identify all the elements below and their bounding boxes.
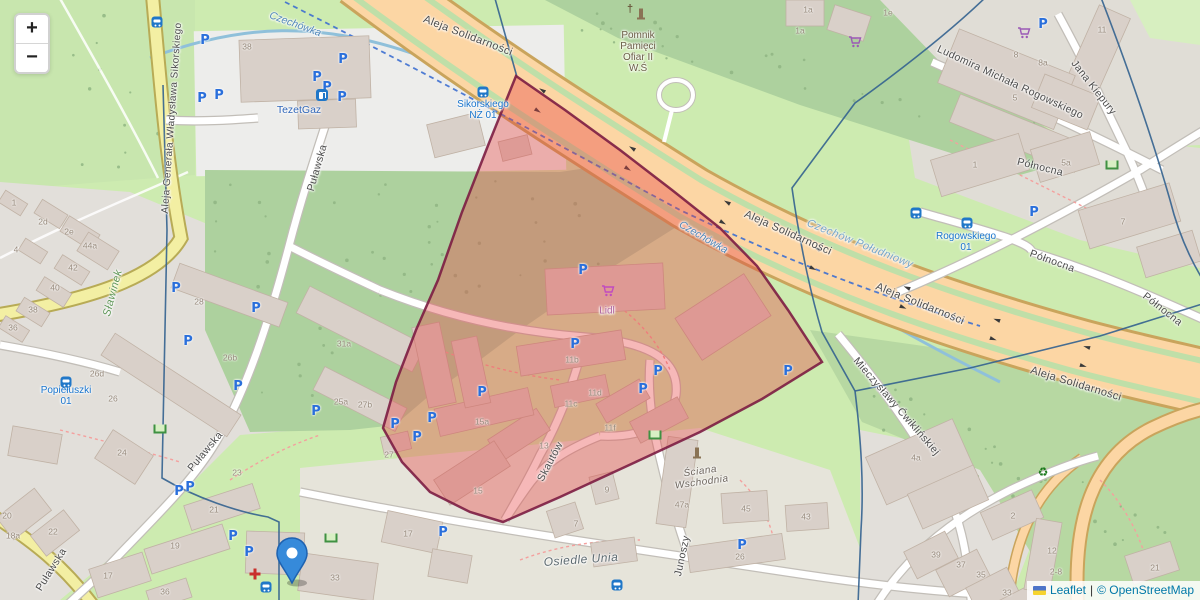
leaflet-link[interactable]: Leaflet [1050, 583, 1086, 597]
zoom-out-button[interactable]: − [16, 44, 48, 72]
attribution-bar: Leaflet | © OpenStreetMap [1027, 581, 1200, 600]
map-canvas[interactable] [0, 0, 1200, 600]
attribution-separator: | [1090, 583, 1093, 597]
map-viewport[interactable]: Aleja SolidarnościAleja SolidarnościAlej… [0, 0, 1200, 600]
map-marker[interactable] [275, 537, 309, 592]
zoom-in-button[interactable]: + [16, 15, 48, 44]
ukraine-flag-icon [1033, 586, 1046, 595]
zoom-control: + − [14, 13, 50, 74]
osm-link[interactable]: © OpenStreetMap [1097, 583, 1194, 597]
